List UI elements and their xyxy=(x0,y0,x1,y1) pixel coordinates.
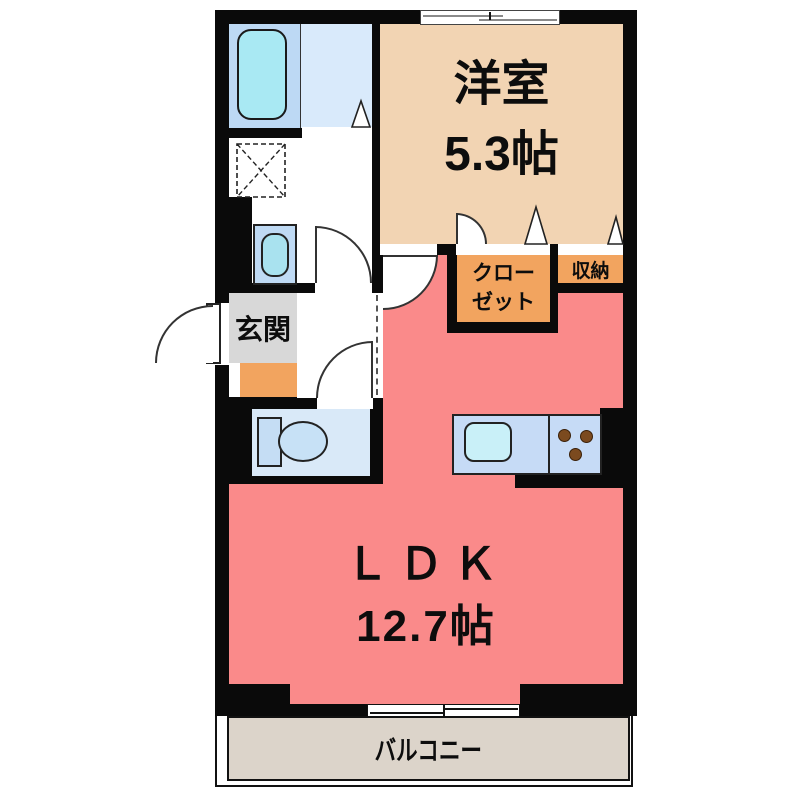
closet-folding-door-triangle xyxy=(525,207,547,244)
storage-folding-door-triangle xyxy=(608,217,623,244)
folding-door-markers xyxy=(0,0,800,800)
bathroom-folding-door-triangle xyxy=(352,101,370,127)
floorplan: 玄関 洋室 5.3帖 ＬＤＫ 12.7帖 クロー ゼット xyxy=(0,0,800,800)
